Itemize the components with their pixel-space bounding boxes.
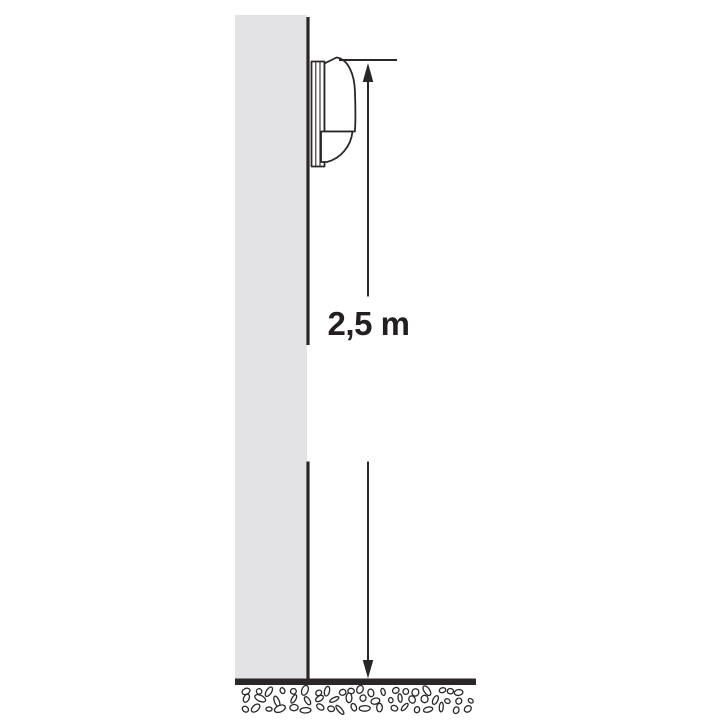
pebble xyxy=(421,695,429,704)
pebble xyxy=(439,702,444,712)
sensor-device-icon xyxy=(312,58,356,167)
pebble xyxy=(250,703,261,714)
pebble xyxy=(391,686,400,694)
wall xyxy=(235,15,307,679)
pebble xyxy=(335,704,345,715)
pebble xyxy=(266,707,272,711)
pebble xyxy=(452,706,460,714)
diagram-canvas: 2,5 m xyxy=(0,0,720,720)
pebble xyxy=(398,694,403,703)
pebble xyxy=(256,688,262,694)
pebble xyxy=(290,704,299,711)
gravel-texture xyxy=(241,684,474,715)
pebble xyxy=(402,688,409,696)
pebble xyxy=(355,684,364,694)
sensor-body xyxy=(325,58,356,132)
arrow-down-icon xyxy=(363,660,374,679)
pebble xyxy=(300,707,311,713)
pebble xyxy=(339,688,347,696)
pebble xyxy=(388,697,394,703)
pebble xyxy=(400,702,409,711)
pebble xyxy=(390,704,398,712)
pebble xyxy=(241,705,250,713)
pebble xyxy=(323,686,330,697)
pebble xyxy=(467,698,474,705)
pebble xyxy=(423,706,433,713)
pebble xyxy=(414,706,421,714)
dimension-label: 2,5 m xyxy=(328,305,410,342)
sensor-lens xyxy=(321,132,353,163)
pebble xyxy=(300,684,310,696)
pebble xyxy=(329,696,340,704)
pebble xyxy=(290,688,297,695)
pebble xyxy=(377,703,383,712)
pebble xyxy=(359,694,366,702)
ground-line xyxy=(235,679,476,686)
pebble xyxy=(439,687,447,694)
pebble xyxy=(290,694,298,704)
pebble xyxy=(463,704,473,713)
pebble xyxy=(380,688,386,696)
pebble xyxy=(327,705,335,712)
pebble xyxy=(444,698,451,704)
pebble xyxy=(454,689,463,696)
pebble xyxy=(431,695,439,706)
pebble xyxy=(455,697,463,705)
installation-diagram: 2,5 m xyxy=(0,0,720,720)
pebble xyxy=(316,703,326,712)
pebble xyxy=(303,696,312,706)
pebble xyxy=(447,688,453,694)
pebble xyxy=(346,693,352,703)
pebble xyxy=(279,687,286,694)
pebble xyxy=(264,686,274,698)
arrow-up-icon xyxy=(363,63,374,82)
pebble xyxy=(359,706,370,712)
pebble xyxy=(350,703,358,712)
pebble xyxy=(367,688,374,697)
